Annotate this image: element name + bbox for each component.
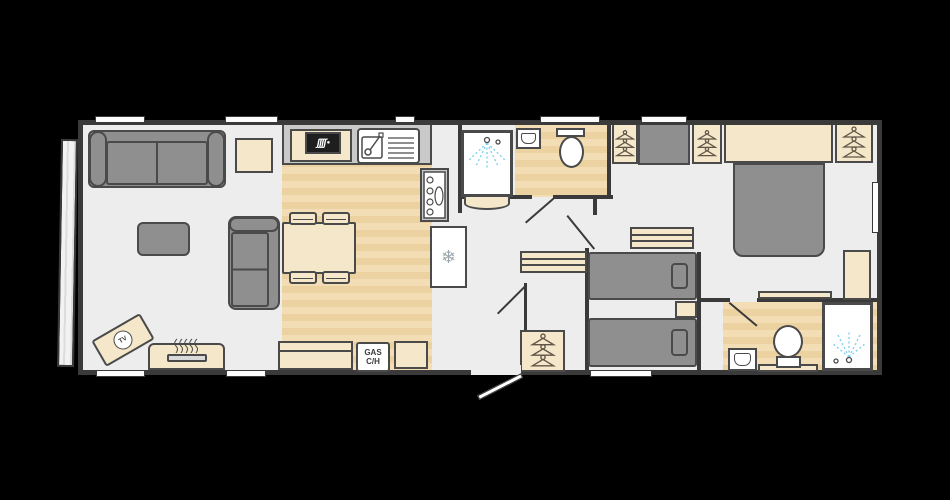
side-table bbox=[235, 138, 273, 173]
loveseat-arm-top bbox=[229, 217, 279, 232]
kitchen-cabinet bbox=[394, 341, 428, 369]
shower-curved-front bbox=[464, 197, 510, 210]
pillow bbox=[671, 263, 688, 289]
twin-cupboard bbox=[638, 125, 690, 165]
hob-knob-icon: ● bbox=[327, 140, 330, 146]
twin-bedroom-door bbox=[566, 215, 595, 250]
sofa-arm-right bbox=[207, 131, 225, 187]
floorplan-stage: TV ʃʃʃʃ ● bbox=[0, 0, 950, 500]
hall-wardrobe bbox=[520, 330, 565, 372]
shower-spray-icon bbox=[825, 305, 870, 368]
loveseat bbox=[228, 216, 280, 310]
cooker-rings-icon bbox=[422, 170, 447, 220]
dining-stool-2 bbox=[322, 212, 350, 225]
window-lounge-bottom-2 bbox=[226, 370, 266, 377]
fire-grille bbox=[167, 354, 207, 362]
window-twin-bottom bbox=[590, 370, 652, 377]
snowflake-icon: ❄ bbox=[441, 247, 456, 268]
shower-spray-icon bbox=[464, 133, 510, 194]
window-twin-top bbox=[641, 116, 687, 123]
clothes-hangers-icon bbox=[530, 333, 556, 369]
fireplace bbox=[148, 343, 225, 370]
gas-central-heating: GAS C/H bbox=[356, 342, 390, 372]
kitchen-bench bbox=[278, 341, 353, 370]
window-lounge-top-1 bbox=[95, 116, 145, 123]
shower-room-toilet-bowl bbox=[559, 136, 584, 168]
wall-hall-stub bbox=[524, 283, 527, 331]
tv-label: TV bbox=[110, 327, 136, 353]
wall-twin-master-divider bbox=[697, 252, 701, 370]
window-kitchen-top bbox=[395, 116, 415, 123]
sofa-arm-left bbox=[89, 131, 107, 187]
wall-shower-bottom-right bbox=[553, 195, 613, 199]
loveseat-cushions bbox=[231, 232, 269, 307]
master-wardrobe bbox=[835, 125, 873, 163]
window-master-right bbox=[872, 182, 879, 233]
clothes-hangers-icon bbox=[615, 129, 635, 159]
wall-twin-door-stub bbox=[593, 195, 597, 215]
pillow bbox=[671, 329, 688, 356]
ensuite-shower-cubicle bbox=[822, 302, 873, 371]
hob: ʃʃʃʃ ● bbox=[305, 132, 341, 154]
ensuite-toilet-bowl bbox=[773, 325, 803, 358]
sink-drainer bbox=[357, 128, 420, 164]
kitchen-hall-door bbox=[497, 285, 527, 315]
clothes-hangers-icon bbox=[697, 129, 717, 159]
entrance-door-leaf bbox=[477, 373, 523, 400]
shower-room-basin bbox=[516, 128, 541, 149]
dining-table bbox=[282, 222, 356, 274]
ensuite-basin bbox=[728, 348, 757, 371]
basin-bowl bbox=[521, 133, 536, 144]
front-glazing-panel bbox=[57, 139, 78, 367]
shower-room-door bbox=[525, 198, 554, 224]
window-shower-room-top bbox=[540, 116, 600, 123]
hall-sideboard bbox=[520, 251, 587, 273]
twin-bed-1 bbox=[588, 252, 697, 300]
shower-cubicle bbox=[461, 130, 513, 197]
basin-bowl bbox=[734, 353, 751, 366]
window-lounge-bottom-1 bbox=[96, 370, 145, 377]
caravan-floor-plan: TV ʃʃʃʃ ● bbox=[78, 120, 882, 375]
sofa-cushions bbox=[106, 141, 208, 185]
sink-icon bbox=[359, 130, 418, 162]
twin-wardrobe-2 bbox=[692, 125, 722, 164]
coffee-table bbox=[137, 222, 190, 256]
twin-chest-of-drawers bbox=[630, 227, 694, 249]
tv-unit: TV bbox=[91, 313, 154, 367]
master-headboard-unit bbox=[724, 125, 833, 163]
master-bedside-unit bbox=[843, 250, 871, 300]
dining-stool-1 bbox=[289, 212, 317, 225]
heat-waves-icon bbox=[172, 338, 202, 353]
gas-label-line2: C/H bbox=[358, 357, 388, 366]
wall-shower-right bbox=[607, 125, 611, 199]
wall-ensuite-top-left bbox=[697, 298, 730, 302]
fridge-freezer: ❄ bbox=[430, 226, 467, 288]
master-shelf bbox=[758, 291, 832, 299]
window-lounge-top-2 bbox=[225, 116, 278, 123]
dining-stool-3 bbox=[289, 271, 317, 284]
sofa bbox=[88, 130, 226, 188]
cooker bbox=[420, 168, 449, 222]
twin-wardrobe-1 bbox=[612, 125, 638, 164]
entrance-opening bbox=[471, 365, 521, 375]
clothes-hangers-icon bbox=[841, 126, 867, 160]
hob-burners-icon: ʃʃʃʃ bbox=[317, 138, 326, 149]
master-double-bed bbox=[733, 163, 825, 257]
twin-bed-2 bbox=[588, 318, 697, 367]
twin-bedside-table bbox=[675, 301, 697, 318]
dining-stool-4 bbox=[322, 271, 350, 284]
gas-label-line1: GAS bbox=[358, 348, 388, 357]
